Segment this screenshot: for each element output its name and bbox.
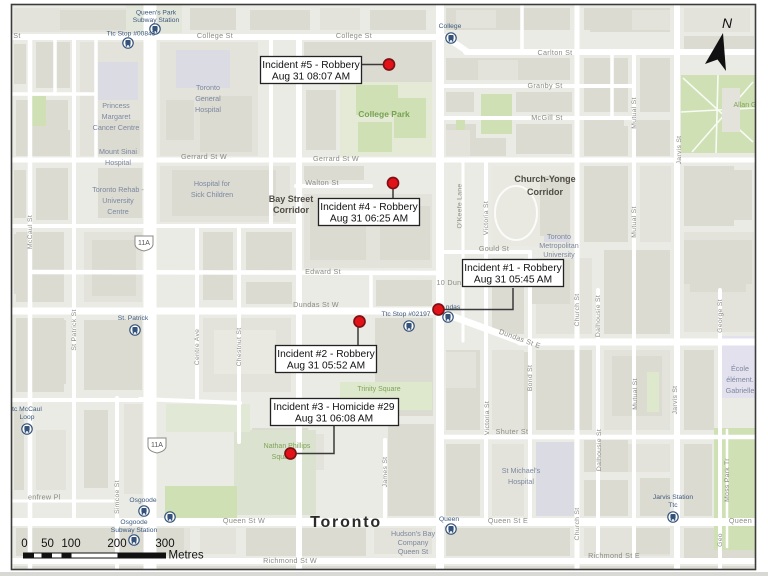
svg-text:Aug 31 06:08 AM: Aug 31 06:08 AM [295, 414, 373, 425]
svg-text:St. Patrick: St. Patrick [118, 315, 149, 322]
svg-text:McCaul St: McCaul St [27, 215, 34, 249]
svg-text:Subway Station: Subway Station [111, 527, 158, 534]
svg-text:Centre Ave: Centre Ave [194, 329, 201, 366]
svg-text:Company: Company [398, 538, 429, 547]
svg-text:Dalhousie St: Dalhousie St [596, 429, 603, 471]
svg-text:Jarvis St: Jarvis St [672, 386, 679, 415]
svg-text:Trinity Square: Trinity Square [357, 386, 400, 393]
svg-text:N: N [722, 15, 733, 31]
svg-text:Hudson's Bay: Hudson's Bay [391, 529, 436, 538]
svg-text:Queen's Park: Queen's Park [136, 10, 177, 17]
svg-text:Ttc: Ttc [668, 502, 678, 509]
svg-text:tc McCaul: tc McCaul [12, 406, 42, 413]
svg-text:Dundas St W: Dundas St W [293, 300, 339, 309]
svg-text:Church St: Church St [574, 294, 581, 327]
svg-text:Simcoe St: Simcoe St [114, 480, 121, 514]
svg-text:Queen: Queen [439, 516, 459, 523]
svg-text:James St: James St [382, 457, 389, 488]
svg-text:Incident #1 - Robbery: Incident #1 - Robbery [464, 263, 562, 274]
svg-text:McGill St: McGill St [531, 113, 562, 122]
svg-text:Gould St: Gould St [479, 244, 509, 253]
svg-text:Bay Street: Bay Street [269, 194, 314, 204]
svg-text:University: University [102, 196, 134, 205]
svg-text:Victoria St: Victoria St [483, 201, 490, 235]
svg-text:Princess: Princess [102, 101, 130, 110]
svg-text:Victoria St: Victoria St [484, 401, 491, 435]
svg-text:Church-Yonge: Church-Yonge [514, 174, 575, 184]
svg-text:St Patrick St: St Patrick St [71, 309, 78, 350]
svg-text:Mutual St: Mutual St [631, 206, 638, 237]
svg-text:Aug 31 05:45 AM: Aug 31 05:45 AM [474, 275, 552, 286]
svg-text:Subway Station: Subway Station [133, 17, 180, 24]
svg-text:0: 0 [21, 538, 27, 550]
svg-text:Osgoode: Osgoode [129, 497, 156, 504]
svg-text:Granby St: Granby St [527, 81, 562, 90]
svg-text:Queen St E: Queen St E [488, 516, 528, 525]
svg-text:Gerrard St W: Gerrard St W [313, 154, 359, 163]
svg-text:University: University [543, 250, 575, 259]
svg-text:10 Dun: 10 Dun [437, 278, 462, 287]
svg-text:College: College [439, 23, 462, 30]
svg-text:100: 100 [61, 538, 80, 550]
svg-text:Cancer Centre: Cancer Centre [93, 123, 140, 132]
svg-text:Carlton St: Carlton St [538, 48, 573, 57]
svg-text:Hospital: Hospital [508, 477, 534, 486]
svg-text:Mutual St: Mutual St [631, 97, 638, 128]
svg-text:Aug 31 05:52 AM: Aug 31 05:52 AM [287, 361, 365, 372]
svg-text:O'Keefe Lane: O'Keefe Lane [457, 184, 464, 229]
svg-text:Richmond St W: Richmond St W [263, 556, 317, 565]
svg-text:Incident #2 - Robbery: Incident #2 - Robbery [277, 349, 375, 360]
svg-text:École: École [731, 364, 749, 373]
svg-text:Loop: Loop [20, 414, 35, 421]
svg-text:Queen St: Queen St [398, 547, 428, 556]
svg-text:College St: College St [197, 31, 233, 40]
svg-text:Shuter St: Shuter St [496, 427, 529, 436]
svg-text:Ttc Stop #00843: Ttc Stop #00843 [106, 31, 155, 38]
svg-text:College St: College St [336, 31, 372, 40]
svg-text:Queen St W: Queen St W [223, 516, 265, 525]
svg-text:Dalhousie St: Dalhousie St [595, 295, 602, 337]
svg-text:Metropolitan: Metropolitan [539, 241, 579, 250]
svg-text:Corridor: Corridor [273, 205, 309, 215]
svg-text:enfrew Pl: enfrew Pl [28, 493, 61, 502]
svg-text:Corridor: Corridor [527, 187, 563, 197]
svg-text:General: General [195, 94, 221, 103]
svg-text:Sick Children: Sick Children [191, 190, 233, 199]
svg-text:Hospital: Hospital [195, 105, 221, 114]
svg-text:Aug 31 08:07 AM: Aug 31 08:07 AM [272, 72, 350, 83]
svg-text:Allan G: Allan G [734, 102, 757, 109]
svg-text:Hospital for: Hospital for [194, 179, 231, 188]
svg-text:Toronto: Toronto [196, 83, 220, 92]
svg-text:Margaret: Margaret [102, 112, 131, 121]
svg-text:Geo: Geo [717, 533, 724, 547]
svg-text:élément.: élément. [726, 375, 754, 384]
svg-text:Metres: Metres [169, 550, 204, 562]
svg-text:Osgoode: Osgoode [120, 519, 147, 526]
svg-text:Toronto: Toronto [547, 232, 571, 241]
svg-text:Ttc Stop #02197: Ttc Stop #02197 [381, 311, 430, 318]
svg-text:Incident #3 - Homicide #29: Incident #3 - Homicide #29 [273, 402, 395, 413]
svg-text:Incident #5 - Robbery: Incident #5 - Robbery [262, 60, 360, 71]
svg-text:Chestnut St: Chestnut St [236, 328, 243, 367]
svg-text:Gerrard St W: Gerrard St W [181, 152, 227, 161]
svg-text:College Park: College Park [358, 109, 410, 119]
svg-text:Moss Park Tr: Moss Park Tr [724, 458, 731, 502]
svg-text:Toronto: Toronto [310, 514, 382, 531]
svg-text:Hospital: Hospital [105, 158, 131, 167]
svg-text:St Michael's: St Michael's [502, 466, 541, 475]
svg-text:Jarvis St: Jarvis St [676, 136, 683, 165]
svg-text:Mount Sinai: Mount Sinai [99, 147, 137, 156]
svg-text:Walton St: Walton St [305, 178, 339, 187]
svg-text:George St: George St [717, 299, 724, 333]
svg-text:Incident #4 - Robbery: Incident #4 - Robbery [320, 202, 418, 213]
svg-text:Jarvis Station: Jarvis Station [653, 494, 693, 501]
svg-text:Mutual St: Mutual St [632, 378, 639, 409]
svg-text:Bond St: Bond St [527, 365, 534, 391]
svg-text:Richmond St E: Richmond St E [588, 551, 640, 560]
svg-text:11A: 11A [151, 442, 163, 449]
svg-text:Aug 31 06:25 AM: Aug 31 06:25 AM [330, 214, 408, 225]
svg-text:Centre: Centre [107, 207, 129, 216]
svg-text:Toronto Rehab -: Toronto Rehab - [92, 185, 144, 194]
svg-text:St: St [13, 31, 20, 40]
svg-text:300: 300 [155, 538, 174, 550]
svg-text:50: 50 [41, 538, 54, 550]
svg-text:Edward St: Edward St [305, 267, 341, 276]
svg-text:Gabrielle: Gabrielle [726, 386, 755, 395]
svg-text:11A: 11A [138, 240, 150, 247]
svg-text:Church St: Church St [574, 508, 581, 541]
svg-text:200: 200 [107, 538, 126, 550]
